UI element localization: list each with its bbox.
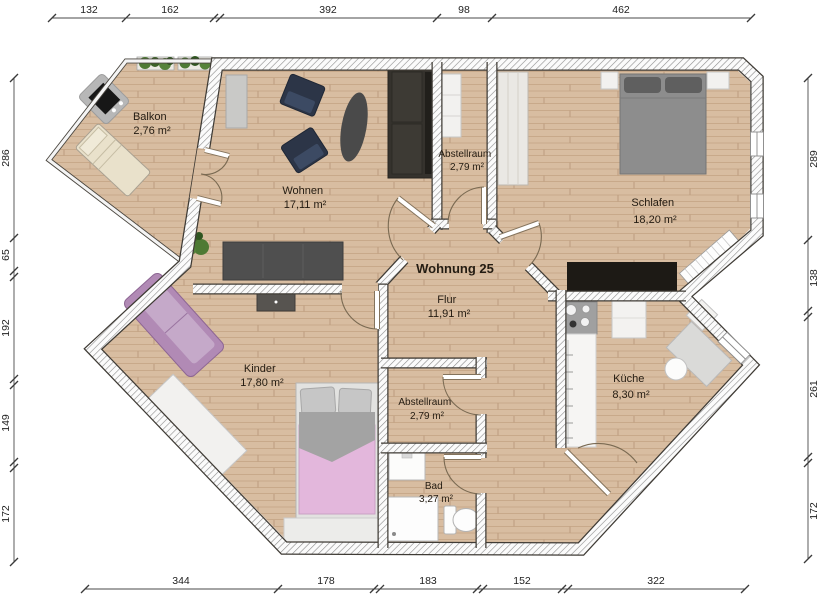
dimension-chain-bottom: 344 178 183 152 322: [81, 575, 749, 593]
svg-text:261: 261: [808, 380, 820, 398]
schlafen-wardrobe: [498, 72, 528, 185]
svg-text:65: 65: [0, 249, 12, 261]
schlafen-nightstand-right: [707, 72, 729, 89]
schlafen-nightstand-left: [601, 72, 618, 89]
svg-text:192: 192: [0, 319, 12, 337]
svg-text:183: 183: [419, 575, 437, 587]
svg-text:172: 172: [808, 502, 820, 520]
svg-text:162: 162: [161, 4, 179, 16]
svg-text:132: 132: [80, 4, 98, 16]
abstellraum-oben-shelf: [441, 74, 461, 137]
wohnen-sideboard-west: [226, 75, 247, 128]
floor-plan-page: Balkon 2,76 m² Wohnen 17,11 m² Abstellra…: [0, 0, 822, 605]
bad-toilet: [444, 506, 479, 534]
kueche-stove: [562, 302, 597, 334]
svg-text:172: 172: [0, 505, 12, 523]
dimension-chain-right: 289 138 261 172: [804, 74, 820, 563]
kinder-tv-board: [257, 294, 295, 311]
kinder-foot-shelf: [284, 518, 378, 542]
dimension-chain-top: 132 162 392 98 462: [48, 4, 755, 22]
svg-text:322: 322: [647, 575, 665, 587]
svg-text:392: 392: [319, 4, 337, 16]
svg-text:289: 289: [808, 150, 820, 168]
label-wohnen: Wohnen 17,11 m²: [282, 181, 327, 211]
label-kinder: Kinder 17,80 m²: [240, 359, 284, 389]
svg-text:98: 98: [458, 4, 470, 16]
svg-text:286: 286: [0, 149, 12, 167]
kueche-fridge: [612, 301, 646, 338]
floor-plan-canvas: Balkon 2,76 m² Wohnen 17,11 m² Abstellra…: [0, 0, 822, 605]
schlafen-double-bed: [620, 74, 706, 174]
label-balkon: Balkon 2,76 m²: [133, 107, 171, 137]
svg-text:149: 149: [0, 414, 12, 432]
kueche-chair-round: [665, 358, 687, 380]
svg-text:178: 178: [317, 575, 335, 587]
dimension-chain-left: 286 65 192 149 172: [0, 74, 18, 566]
kinder-bed: [296, 383, 378, 518]
svg-text:462: 462: [612, 4, 630, 16]
label-wohnung-title: Wohnung 25: [416, 261, 494, 276]
svg-text:344: 344: [172, 575, 190, 587]
window-schlafen-east-2: [751, 194, 764, 218]
window-schlafen-east-1: [751, 132, 764, 156]
kueche-counter: [562, 334, 596, 447]
wohnen-lowboard-south: [223, 242, 343, 280]
svg-text:152: 152: [513, 575, 531, 587]
bad-sink: [389, 452, 425, 480]
wohnen-sofa: [388, 68, 435, 178]
svg-text:138: 138: [808, 269, 820, 287]
